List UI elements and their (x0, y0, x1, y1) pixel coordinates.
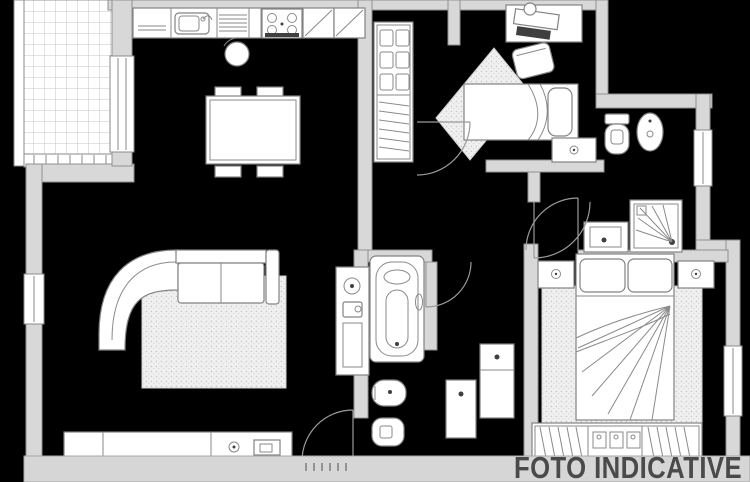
console-knob (495, 355, 500, 360)
entry-wardrobe (374, 22, 413, 162)
balcony-left-railing (14, 0, 24, 166)
bidet (637, 113, 663, 151)
toilet (605, 124, 629, 154)
desk-lamp (524, 3, 536, 15)
washbasin-drain (602, 238, 607, 243)
washing-machine-dot (350, 284, 354, 288)
chair (215, 166, 241, 177)
stove-knob (281, 23, 284, 26)
dining-area (206, 87, 300, 177)
shower (630, 200, 682, 252)
bathtub (370, 256, 424, 362)
floor-plan-image: FOTO INDICATIVE (0, 0, 750, 482)
laundry-cabinet (336, 267, 369, 375)
chair (257, 166, 283, 177)
balcony-door-window (110, 56, 134, 152)
kitchen-stool (225, 42, 249, 66)
sofa-backrest (176, 250, 266, 263)
wall-top-right-vertical (596, 0, 608, 102)
wall-bathroom2-left-stub (528, 172, 540, 202)
plant-dot (573, 149, 575, 151)
master-bedroom (532, 254, 714, 462)
sofa-right-arm (266, 250, 279, 304)
bathtub-drain (395, 342, 399, 346)
balcony-tiled-floor (14, 0, 112, 166)
floor-plan-svg: FOTO INDICATIVE (0, 0, 750, 482)
dining-table (206, 96, 300, 164)
tv-knob-dot (233, 446, 236, 449)
pillow-left (580, 259, 625, 292)
stove-front-band (265, 33, 299, 37)
hall-cabinet (446, 380, 476, 438)
toilet-tank (605, 114, 629, 124)
sideboard-object (254, 440, 280, 455)
plant-dot (555, 273, 557, 275)
toilet (372, 418, 404, 446)
pillow-right (628, 259, 672, 292)
laundry-body (336, 267, 369, 375)
laundry-basket (343, 302, 362, 317)
plant-dot (695, 273, 697, 275)
cabinet-knob (459, 392, 464, 397)
bidet-faucet (649, 120, 652, 123)
pillow (548, 88, 572, 136)
wall-top-right-horizontal (596, 94, 712, 108)
bidet-drain (388, 390, 392, 394)
watermark-text: FOTO INDICATIVE (514, 450, 742, 482)
wall-bedroom2-left-stub (448, 0, 460, 45)
balcony (14, 0, 114, 167)
